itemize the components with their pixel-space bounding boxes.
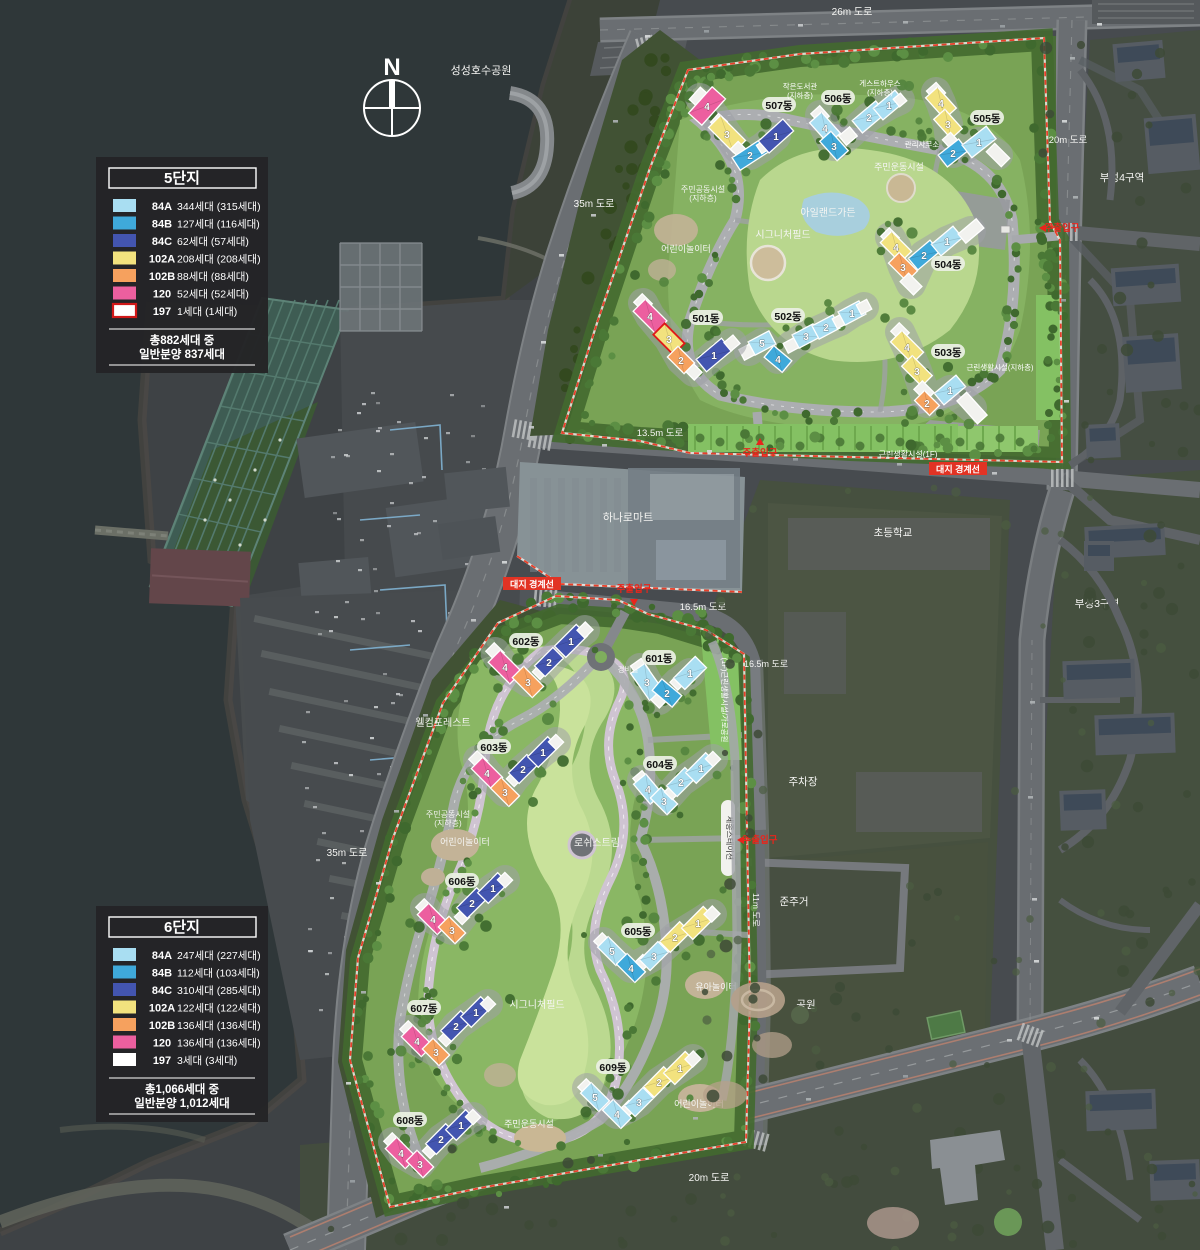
- svg-text:게스트하우스: 게스트하우스: [859, 78, 900, 88]
- svg-text:주출입구: 주출입구: [617, 583, 652, 595]
- svg-text:502동: 502동: [774, 311, 802, 323]
- svg-text:2: 2: [469, 899, 475, 910]
- svg-text:시그니처필드: 시그니처필드: [755, 229, 810, 241]
- svg-text:3: 3: [433, 1048, 439, 1059]
- svg-text:136세대 (136세대): 136세대 (136세대): [177, 1038, 261, 1050]
- svg-text:1: 1: [947, 386, 953, 397]
- svg-text:20m 도로: 20m 도로: [1049, 135, 1088, 146]
- svg-text:505동: 505동: [973, 113, 1001, 125]
- svg-text:102B: 102B: [149, 1020, 175, 1032]
- svg-text:어린이놀이터: 어린이놀이터: [440, 837, 490, 847]
- svg-text:4: 4: [822, 124, 828, 135]
- svg-text:35m 도로: 35m 도로: [574, 199, 615, 210]
- svg-text:3: 3: [831, 142, 837, 153]
- svg-text:2: 2: [546, 658, 552, 669]
- svg-text:주출입구: 주출입구: [743, 447, 778, 459]
- svg-text:4: 4: [938, 99, 944, 110]
- svg-text:3: 3: [724, 130, 730, 141]
- svg-text:1: 1: [490, 884, 496, 895]
- svg-text:4: 4: [628, 964, 634, 975]
- svg-text:(지하층): (지하층): [434, 818, 462, 828]
- svg-text:작은도서관: 작은도서관: [783, 81, 818, 91]
- svg-text:3: 3: [502, 788, 508, 799]
- svg-text:2: 2: [747, 151, 753, 162]
- svg-text:하나로마트: 하나로마트: [603, 510, 654, 524]
- svg-text:197: 197: [153, 1055, 171, 1067]
- svg-text:총1,066세대 중: 총1,066세대 중: [145, 1082, 220, 1096]
- svg-text:84A: 84A: [152, 201, 172, 213]
- svg-text:2: 2: [438, 1135, 444, 1146]
- svg-text:506동: 506동: [824, 93, 852, 105]
- svg-text:(지하층): (지하층): [787, 90, 813, 100]
- svg-text:1: 1: [458, 1121, 464, 1132]
- svg-text:3세대 (3세대): 3세대 (3세대): [177, 1055, 237, 1067]
- svg-text:주민공동시설: 주민공동시설: [426, 809, 470, 819]
- svg-text:1: 1: [687, 669, 693, 680]
- svg-text:4: 4: [430, 915, 436, 926]
- svg-text:501동: 501동: [692, 313, 720, 325]
- svg-text:주민공동시설: 주민공동시설: [681, 184, 725, 194]
- svg-text:성성호수공원: 성성호수공원: [451, 64, 512, 77]
- svg-text:(지하층): (지하층): [867, 87, 893, 97]
- svg-text:3: 3: [803, 332, 809, 343]
- svg-text:2: 2: [664, 689, 670, 700]
- svg-text:606동: 606동: [448, 876, 476, 888]
- svg-text:2: 2: [678, 356, 684, 367]
- svg-text:웰컴포레스트: 웰컴포레스트: [415, 717, 470, 729]
- svg-text:609동: 609동: [599, 1062, 627, 1074]
- svg-text:근린생활시설(지하층): 근린생활시설(지하층): [966, 362, 1034, 372]
- svg-text:112세대 (103세대): 112세대 (103세대): [177, 968, 260, 980]
- svg-text:127세대 (116세대): 127세대 (116세대): [177, 219, 260, 231]
- svg-text:시그니처필드: 시그니처필드: [509, 999, 564, 1011]
- svg-text:준주거: 준주거: [780, 896, 809, 908]
- svg-text:4: 4: [614, 1110, 620, 1121]
- svg-text:11m 도로: 11m 도로: [751, 893, 761, 927]
- svg-text:3: 3: [417, 1160, 423, 1171]
- svg-text:102A: 102A: [149, 254, 175, 266]
- svg-text:84A: 84A: [152, 950, 172, 962]
- svg-text:1: 1: [711, 351, 717, 362]
- svg-text:13.5m 도로: 13.5m 도로: [637, 428, 684, 439]
- svg-text:4: 4: [904, 343, 910, 354]
- svg-text:604동: 604동: [646, 759, 674, 771]
- svg-text:N: N: [383, 54, 400, 81]
- svg-text:1: 1: [540, 748, 546, 759]
- svg-text:3: 3: [666, 335, 672, 346]
- svg-text:2: 2: [656, 1078, 662, 1089]
- svg-text:1: 1: [695, 919, 701, 930]
- svg-text:2: 2: [678, 778, 684, 789]
- svg-text:26m 도로: 26m 도로: [832, 7, 873, 18]
- svg-text:1: 1: [773, 132, 779, 143]
- svg-text:1: 1: [568, 637, 574, 648]
- svg-text:4: 4: [414, 1037, 420, 1048]
- svg-text:2: 2: [921, 251, 927, 262]
- svg-text:1: 1: [944, 237, 950, 248]
- svg-text:4: 4: [647, 312, 653, 323]
- svg-text:유아놀이터: 유아놀이터: [695, 982, 736, 992]
- svg-text:120: 120: [153, 289, 171, 301]
- svg-text:601동: 601동: [645, 653, 673, 665]
- svg-text:605동: 605동: [624, 926, 652, 938]
- svg-text:607동: 607동: [410, 1003, 438, 1015]
- svg-text:3: 3: [914, 367, 920, 378]
- svg-text:504동: 504동: [934, 259, 962, 271]
- svg-text:1: 1: [849, 309, 855, 320]
- svg-text:1: 1: [698, 764, 704, 775]
- svg-text:3: 3: [945, 120, 951, 131]
- svg-text:1세대 (1세대): 1세대 (1세대): [177, 306, 237, 318]
- svg-text:5: 5: [759, 339, 765, 350]
- svg-text:총882세대 중: 총882세대 중: [150, 333, 215, 347]
- svg-text:84B: 84B: [152, 968, 172, 980]
- svg-text:주민운동시설: 주민운동시설: [874, 162, 924, 172]
- svg-text:(지하층): (지하층): [689, 193, 717, 203]
- svg-text:197: 197: [153, 306, 171, 318]
- svg-text:3: 3: [636, 1098, 642, 1109]
- svg-text:근린생활시설(1F): 근린생활시설(1F): [879, 449, 938, 459]
- svg-text:5: 5: [609, 947, 615, 958]
- svg-text:344세대 (315세대): 344세대 (315세대): [177, 201, 261, 213]
- svg-text:2: 2: [453, 1022, 459, 1033]
- svg-text:2: 2: [866, 113, 872, 124]
- svg-text:84C: 84C: [152, 985, 172, 997]
- svg-text:4: 4: [704, 102, 710, 113]
- svg-text:대지 경계선: 대지 경계선: [936, 464, 980, 475]
- svg-text:122세대 (122세대): 122세대 (122세대): [177, 1003, 261, 1015]
- svg-text:503동: 503동: [934, 347, 962, 359]
- svg-text:507동: 507동: [765, 100, 793, 112]
- svg-text:4: 4: [893, 243, 899, 254]
- svg-text:3: 3: [644, 678, 650, 689]
- svg-text:84C: 84C: [152, 236, 172, 248]
- svg-text:52세대 (52세대): 52세대 (52세대): [177, 289, 249, 301]
- svg-text:3: 3: [661, 797, 667, 808]
- svg-text:310세대 (285세대): 310세대 (285세대): [177, 985, 261, 997]
- svg-text:3: 3: [900, 263, 906, 274]
- svg-text:주차장: 주차장: [789, 776, 818, 788]
- svg-text:35m 도로: 35m 도로: [327, 848, 368, 859]
- svg-text:2: 2: [823, 323, 829, 334]
- svg-text:16.5m 도로: 16.5m 도로: [744, 659, 788, 669]
- svg-text:부성4구역: 부성4구역: [1100, 172, 1144, 184]
- svg-text:102A: 102A: [149, 1003, 175, 1015]
- svg-text:3: 3: [449, 926, 455, 937]
- svg-text:초등학교: 초등학교: [874, 527, 913, 539]
- svg-text:2: 2: [520, 765, 526, 776]
- svg-text:84B: 84B: [152, 219, 172, 231]
- svg-text:어린이놀이터: 어린이놀이터: [661, 244, 711, 254]
- svg-text:경비실: 경비실: [618, 664, 639, 674]
- svg-text:로쉬스트림: 로쉬스트림: [574, 837, 620, 849]
- svg-text:20m 도로: 20m 도로: [689, 1173, 730, 1184]
- svg-text:2: 2: [950, 149, 956, 160]
- svg-text:208세대 (208세대): 208세대 (208세대): [177, 254, 261, 266]
- svg-text:1: 1: [976, 138, 982, 149]
- svg-text:608동: 608동: [396, 1115, 424, 1127]
- svg-text:2: 2: [672, 933, 678, 944]
- svg-text:4: 4: [484, 769, 490, 780]
- svg-text:4: 4: [645, 785, 651, 796]
- svg-text:602동: 602동: [512, 636, 540, 648]
- svg-text:6단지: 6단지: [164, 919, 200, 936]
- svg-text:(1F)근린생활시설/가로공원: (1F)근린생활시설/가로공원: [720, 658, 730, 743]
- svg-text:5: 5: [592, 1093, 598, 1104]
- svg-text:120: 120: [153, 1038, 171, 1050]
- svg-text:대지 경계선: 대지 경계선: [510, 579, 554, 590]
- svg-text:아일랜드가든: 아일랜드가든: [800, 207, 855, 219]
- svg-text:4: 4: [398, 1149, 404, 1160]
- svg-text:247세대 (227세대): 247세대 (227세대): [177, 950, 261, 962]
- svg-text:5단지: 5단지: [164, 170, 200, 187]
- svg-text:일반분양 1,012세대: 일반분양 1,012세대: [134, 1096, 229, 1110]
- svg-text:88세대 (88세대): 88세대 (88세대): [177, 271, 249, 283]
- svg-text:136세대 (136세대): 136세대 (136세대): [177, 1020, 261, 1032]
- svg-text:주민운동시설: 주민운동시설: [504, 1119, 554, 1129]
- svg-text:1: 1: [677, 1064, 683, 1075]
- svg-text:일반분양 837세대: 일반분양 837세대: [139, 347, 225, 361]
- svg-text:3: 3: [651, 952, 657, 963]
- svg-text:관리사무소: 관리사무소: [905, 139, 940, 149]
- svg-text:102B: 102B: [149, 271, 175, 283]
- svg-text:주출입구: 주출입구: [1045, 222, 1080, 234]
- svg-text:2: 2: [924, 399, 930, 410]
- svg-text:3: 3: [525, 678, 531, 689]
- svg-text:4: 4: [502, 663, 508, 674]
- svg-text:603동: 603동: [480, 742, 508, 754]
- svg-text:1: 1: [886, 101, 892, 112]
- svg-text:1: 1: [473, 1008, 479, 1019]
- svg-text:4: 4: [775, 355, 781, 366]
- svg-text:62세대 (57세대): 62세대 (57세대): [177, 236, 249, 248]
